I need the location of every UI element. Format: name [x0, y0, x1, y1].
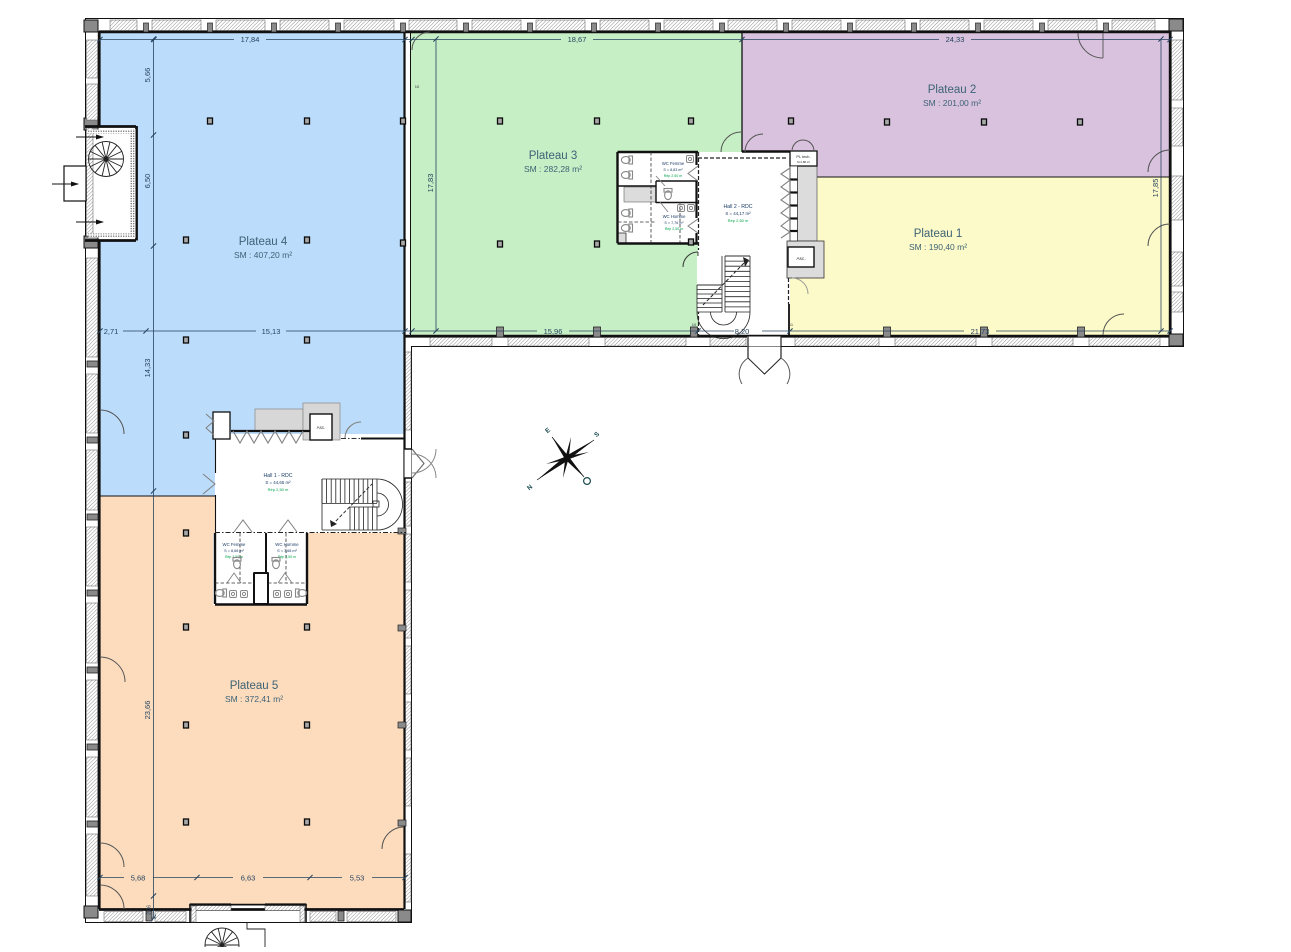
svg-text:10: 10 — [692, 322, 697, 327]
svg-text:WC Homme: WC Homme — [275, 542, 299, 547]
svg-text:17,84: 17,84 — [241, 35, 260, 44]
svg-text:Plateau 4: Plateau 4 — [239, 236, 288, 248]
svg-text:S = 7,76 m²: S = 7,76 m² — [664, 221, 684, 225]
svg-text:Asc.: Asc. — [796, 256, 805, 262]
svg-text:S = 8,68 m²: S = 8,68 m² — [224, 549, 244, 553]
svg-text:Plateau 1: Plateau 1 — [914, 228, 963, 240]
svg-text:SM : 282,28 m²: SM : 282,28 m² — [524, 164, 582, 174]
svg-text:23,66: 23,66 — [143, 701, 152, 720]
svg-text:Rép 2,50 m: Rép 2,50 m — [268, 487, 289, 492]
svg-text:6,50: 6,50 — [143, 174, 152, 189]
svg-text:Hall 2 - RDC: Hall 2 - RDC — [723, 204, 752, 210]
svg-text:SM : 201,00 m²: SM : 201,00 m² — [923, 98, 981, 108]
svg-text:PL tech.: PL tech. — [796, 154, 810, 159]
svg-text:2,06: 2,06 — [147, 905, 153, 915]
svg-text:5,66: 5,66 — [143, 68, 152, 83]
svg-text:18,67: 18,67 — [568, 35, 587, 44]
svg-text:S = 8,83 m²: S = 8,83 m² — [663, 168, 683, 172]
svg-text:Plateau 3: Plateau 3 — [529, 150, 578, 162]
svg-text:WC Homme: WC Homme — [663, 214, 686, 219]
svg-text:17,83: 17,83 — [426, 174, 435, 193]
svg-text:24,33: 24,33 — [946, 35, 965, 44]
svg-text:5,53: 5,53 — [350, 874, 365, 883]
svg-text:Rép 2,50 m: Rép 2,50 m — [665, 227, 684, 231]
svg-text:S = 44,65 m²: S = 44,65 m² — [265, 480, 291, 485]
svg-text:10: 10 — [415, 84, 420, 89]
svg-text:5,68: 5,68 — [131, 874, 146, 883]
svg-text:WC Femme: WC Femme — [662, 161, 685, 166]
svg-text:Asc.: Asc. — [317, 425, 326, 430]
svg-text:S = 7,68 m²: S = 7,68 m² — [277, 549, 297, 553]
svg-text:SM : 372,41 m²: SM : 372,41 m² — [225, 694, 283, 704]
svg-text:Hall 1 - RDC: Hall 1 - RDC — [263, 473, 292, 479]
svg-text:6,63: 6,63 — [241, 874, 256, 883]
svg-text:Plateau 5: Plateau 5 — [230, 680, 279, 692]
svg-text:15,13: 15,13 — [262, 327, 281, 336]
svg-text:14,33: 14,33 — [143, 359, 152, 378]
svg-text:2,71: 2,71 — [104, 327, 119, 336]
svg-text:SM : 190,40 m²: SM : 190,40 m² — [909, 242, 967, 252]
svg-text:WC Femme: WC Femme — [223, 542, 247, 547]
svg-text:17,85: 17,85 — [1151, 179, 1160, 198]
svg-text:Rép 2,50 m: Rép 2,50 m — [278, 555, 296, 559]
svg-text:Rép 2,50 m: Rép 2,50 m — [664, 174, 683, 178]
svg-text:S=1,88 m²: S=1,88 m² — [797, 160, 810, 164]
svg-text:8,20: 8,20 — [735, 327, 750, 336]
svg-text:SM : 407,20 m²: SM : 407,20 m² — [234, 250, 292, 260]
svg-text:Rép 2,50 m: Rép 2,50 m — [728, 218, 749, 223]
svg-text:21,73: 21,73 — [971, 327, 990, 336]
svg-text:S = 44,17 m²: S = 44,17 m² — [725, 211, 751, 216]
svg-text:Plateau 2: Plateau 2 — [928, 84, 977, 96]
svg-text:15,96: 15,96 — [544, 327, 563, 336]
